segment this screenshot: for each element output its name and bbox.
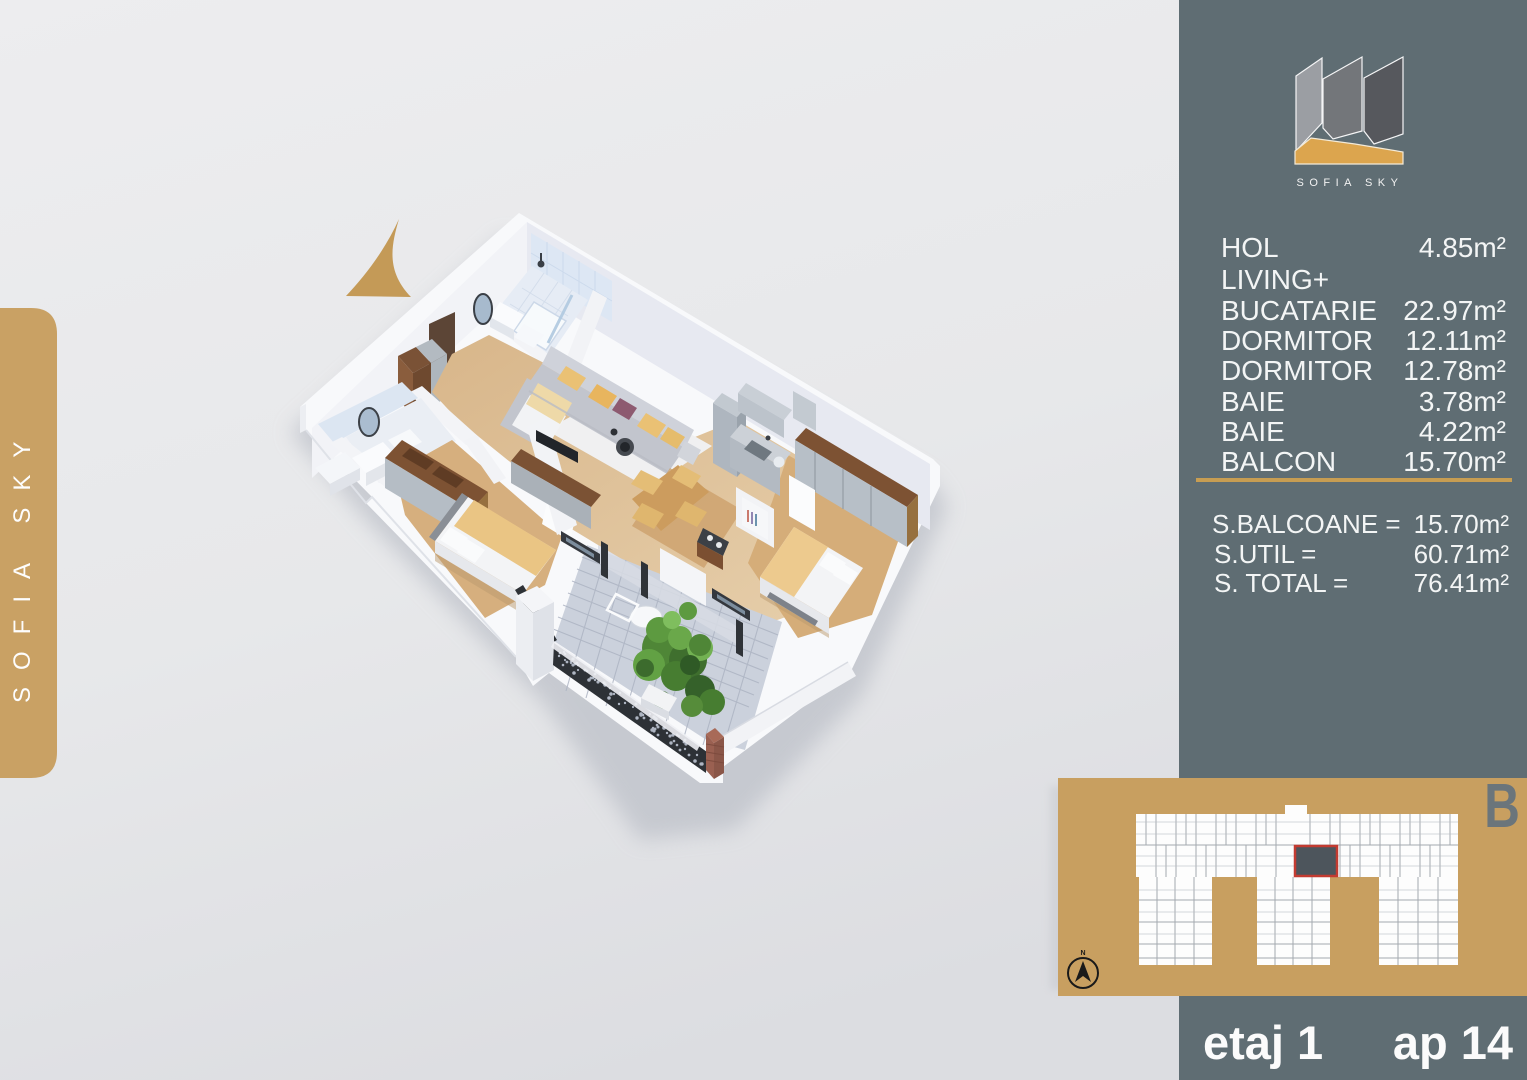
svg-text:BUCATARIE: BUCATARIE: [1221, 295, 1377, 326]
svg-text:BALCON: BALCON: [1221, 446, 1336, 477]
svg-text:15.70m²: 15.70m²: [1403, 446, 1506, 477]
svg-text:12.78m²: 12.78m²: [1403, 355, 1506, 386]
svg-text:60.71m²: 60.71m²: [1414, 539, 1510, 569]
svg-text:BAIE: BAIE: [1221, 416, 1285, 447]
svg-text:S.UTIL =: S.UTIL =: [1214, 539, 1316, 569]
svg-text:SOFIA SKY: SOFIA SKY: [9, 425, 36, 703]
svg-text:4.85m²: 4.85m²: [1419, 232, 1506, 263]
svg-text:DORMITOR: DORMITOR: [1221, 355, 1373, 386]
svg-text:ap 14: ap 14: [1393, 1016, 1513, 1069]
svg-text:15.70m²: 15.70m²: [1414, 509, 1510, 539]
svg-text:12.11m²: 12.11m²: [1405, 325, 1506, 356]
svg-text:etaj 1: etaj 1: [1203, 1016, 1323, 1069]
svg-text:HOL: HOL: [1221, 232, 1279, 263]
svg-text:S.BALCOANE =: S.BALCOANE =: [1212, 509, 1401, 539]
svg-text:B: B: [1484, 771, 1520, 841]
svg-text:BAIE: BAIE: [1221, 386, 1285, 417]
svg-text:SOFIA SKY: SOFIA SKY: [1297, 177, 1404, 189]
svg-text:3.78m²: 3.78m²: [1419, 386, 1506, 417]
svg-text:4.22m²: 4.22m²: [1419, 416, 1506, 447]
svg-text:S. TOTAL =: S. TOTAL =: [1214, 568, 1348, 598]
svg-text:22.97m²: 22.97m²: [1403, 295, 1506, 326]
svg-text:DORMITOR: DORMITOR: [1221, 325, 1373, 356]
svg-text:N: N: [1080, 950, 1085, 957]
svg-text:76.41m²: 76.41m²: [1414, 568, 1510, 598]
svg-text:LIVING+: LIVING+: [1221, 264, 1329, 295]
